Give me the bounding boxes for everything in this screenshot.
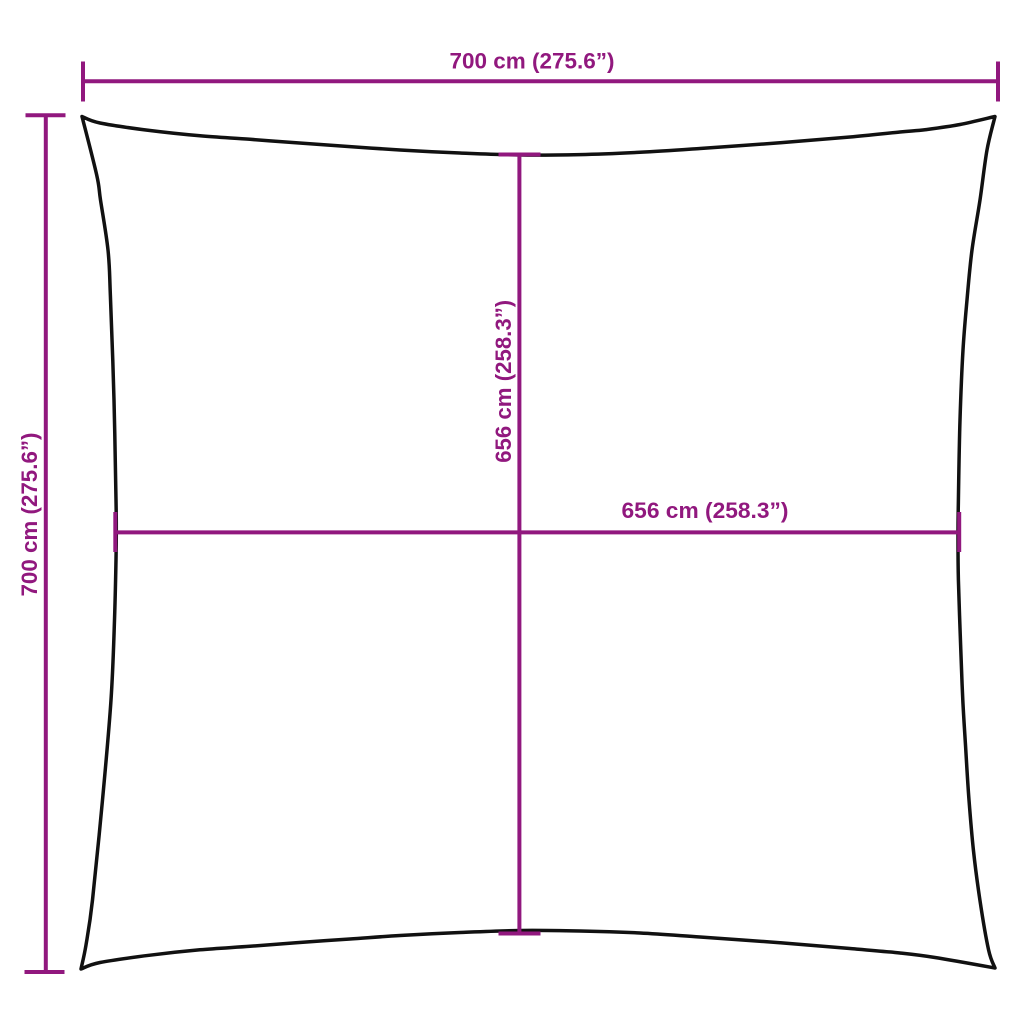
svg-text:700 cm (275.6”): 700 cm (275.6”) bbox=[450, 49, 615, 74]
svg-text:656 cm (258.3”): 656 cm (258.3”) bbox=[491, 300, 516, 463]
svg-text:656 cm (258.3”): 656 cm (258.3”) bbox=[622, 498, 789, 523]
svg-text:700 cm (275.6”): 700 cm (275.6”) bbox=[17, 433, 42, 597]
